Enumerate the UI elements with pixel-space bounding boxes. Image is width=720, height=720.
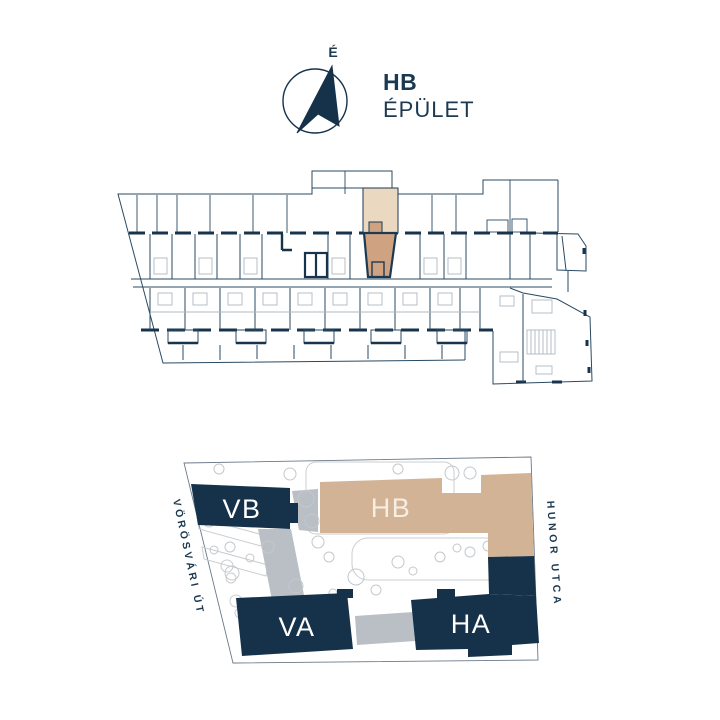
site-building-ha-label[interactable]: HA	[451, 609, 492, 639]
floor-plan-outline	[118, 171, 592, 384]
building-word: ÉPÜLET	[383, 96, 475, 124]
compass-needle	[297, 66, 339, 133]
floor-plan	[95, 160, 615, 400]
page-title: HB ÉPÜLET	[383, 68, 475, 124]
building-code: HB	[383, 68, 475, 96]
site-building-vb[interactable]: VB	[191, 484, 298, 529]
highlighted-unit-body[interactable]	[364, 233, 396, 277]
balconies	[168, 330, 467, 343]
structural-walls	[129, 233, 589, 382]
page: É HB ÉPÜLET	[0, 0, 720, 720]
site-building-vb-label[interactable]: VB	[222, 494, 261, 524]
compass-north-icon: É	[278, 38, 388, 143]
corridor	[131, 279, 552, 287]
highlighted-unit[interactable]	[363, 188, 398, 277]
site-building-va-label[interactable]: VA	[278, 612, 315, 642]
highlighted-unit-step	[369, 222, 382, 233]
elevator-core	[305, 253, 327, 277]
street-label-hunor-utca: HUNOR UTCA	[544, 500, 563, 607]
site-plan: VB HB VA HA VÖRÖSVÁRI ÚT HUNOR UTCA	[155, 440, 575, 685]
site-building-va[interactable]: VA	[236, 589, 353, 656]
terrace-strip	[137, 171, 527, 233]
compass-north-label: É	[328, 44, 337, 60]
site-building-hb-label[interactable]: HB	[371, 493, 412, 523]
unit-dividers	[150, 234, 566, 382]
interior-detail	[150, 258, 555, 374]
